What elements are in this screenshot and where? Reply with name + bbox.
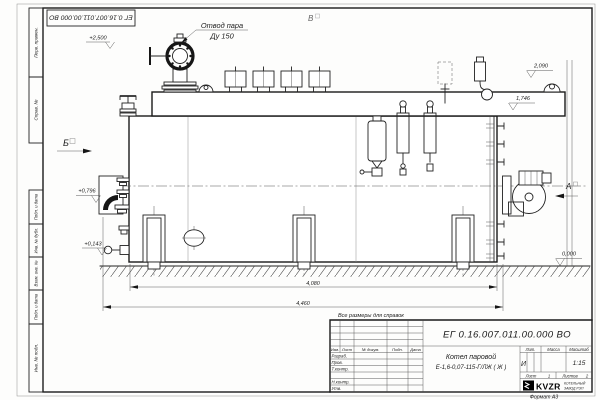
litera-header: Лит.: [525, 347, 536, 352]
flipped-designation-box: ЕГ 0.16.007.011.00.000 ВО: [47, 10, 135, 26]
elevation-mark: +0,796: [76, 189, 101, 203]
support-leg: [143, 215, 165, 269]
elevation-value: +0,796: [78, 189, 96, 195]
margin-cell-podp-data-2: Подп. и дата: [29, 290, 43, 324]
dim-inner-length: 4,080: [306, 281, 320, 287]
mass-header: Масса: [547, 347, 560, 352]
product-name-line1: Котел паровой: [446, 353, 496, 361]
side-nozzle: [119, 226, 129, 234]
sig-row-prov: Пров.: [332, 360, 343, 365]
steam-outlet-label-line2: Ду 150: [209, 32, 234, 41]
title-designation: ЕГ 0.16.007.011.00.000 ВО: [443, 330, 571, 341]
lifting-lug: [544, 84, 560, 92]
steam-outlet-valve: [150, 34, 198, 92]
title-block: ЕГ 0.16.007.011.00.000 ВО Котел паровой …: [330, 320, 592, 392]
support-leg: [293, 215, 315, 269]
margin-label: Инв. № подл.: [34, 344, 39, 373]
sig-row-tkontr: Т.контр.: [332, 367, 349, 372]
sheet-value: 1: [548, 374, 550, 379]
view-marker-b: Б: [57, 138, 92, 153]
format-note: Формат А3: [530, 395, 558, 400]
burner-unit: [503, 171, 552, 216]
sheet-label: Лист: [525, 374, 537, 379]
product-name-line2: Е-1,6-0,07-115-Г/ЛЖ ( Ж ): [436, 365, 507, 371]
safety-valve-hood: [309, 67, 330, 92]
elevation-value: 1,746: [516, 96, 531, 102]
sheets-label: Листов: [561, 374, 578, 379]
safety-valve-hood: [225, 67, 246, 92]
col-header-date: Дата: [409, 347, 421, 352]
margin-label: Взам. инв. №: [34, 260, 39, 286]
margin-label: Подп. и дата: [34, 293, 39, 320]
view-marker-v: В: [308, 14, 320, 23]
col-header-izm: Изм.: [331, 347, 340, 352]
scale-header: Масштаб: [569, 347, 589, 352]
side-nozzle: [115, 205, 129, 213]
lifting-lug: [199, 85, 213, 92]
top-left-valve: [120, 96, 136, 116]
steam-outlet-label-line1: Отвод пара: [201, 21, 243, 30]
margin-label: Инв. № дубл.: [34, 228, 39, 254]
col-header-doc: № докум.: [362, 347, 380, 352]
view-letter: А: [565, 182, 571, 191]
litera-value: И: [521, 361, 527, 368]
ground-line: [100, 266, 590, 277]
elevation-mark: +2,500: [86, 36, 115, 49]
steam-drum-platform: [152, 92, 565, 116]
margin-cell-inv-dubl: Инв. № дубл.: [29, 224, 43, 257]
col-header-list: Лист: [341, 347, 353, 352]
elevation-value: 2,090: [533, 64, 549, 70]
sheets-value: 2: [585, 374, 589, 379]
scale-value: 1:15: [573, 360, 586, 367]
margin-cell-sprav-no: Справ. №: [29, 77, 43, 143]
sig-row-utv: Утв.: [332, 386, 342, 391]
dim-outer-length: 4,460: [296, 301, 310, 307]
reference-note: Все размеры для справок: [338, 313, 404, 319]
margin-label: Перв. примен.: [34, 27, 39, 58]
safety-valve-hood: [281, 67, 302, 92]
logo-subtext-2: ЗАВОД РЭП: [564, 387, 584, 391]
sig-row-razrab: Разраб.: [332, 354, 348, 359]
elevation-value: +2,500: [89, 36, 107, 42]
view-marker-a: А: [555, 182, 578, 198]
margin-cell-inv-podl: Инв. № подл.: [29, 324, 43, 392]
flipped-designation-text: ЕГ 0.16.007.011.00.000 ВО: [49, 14, 133, 21]
col-header-sign: Подп.: [392, 347, 403, 352]
margin-label: Справ. №: [34, 100, 39, 121]
elevation-mark: 0,000: [556, 252, 583, 266]
margin-cell-perv-primen: Перв. примен.: [29, 8, 43, 77]
margin-cell-podp-data-1: Подп. и дата: [29, 190, 43, 224]
elevation-value: +0,143: [84, 242, 102, 248]
boiler-side-view: Отвод пара Ду 150: [99, 21, 590, 277]
support-leg: [452, 215, 474, 269]
company-logo: KVZR КОТЕЛЬНЫЙ ЗАВОД РЭП: [523, 381, 586, 392]
steam-outlet-callout: Отвод пара Ду 150: [181, 21, 248, 43]
sig-row-nkontr: Н.контр.: [332, 380, 350, 385]
elevation-value: 0,000: [562, 252, 577, 258]
margin-label: Подп. и дата: [34, 193, 39, 220]
elevation-mark: 2,090: [527, 64, 554, 78]
view-letter: Б: [63, 138, 69, 148]
margin-stamps: Перв. примен. Справ. № Подп. и дата Инв.…: [29, 8, 43, 392]
view-letter: В: [308, 14, 314, 23]
drawing-sheet: Перв. примен. Справ. № Подп. и дата Инв.…: [0, 0, 600, 400]
margin-cell-vzam-inv: Взам. инв. №: [29, 257, 43, 290]
boiler-assembly-drawing: Перв. примен. Справ. № Подп. и дата Инв.…: [0, 0, 600, 400]
safety-valve-hood: [253, 67, 274, 92]
logo-text: KVZR: [536, 382, 561, 392]
drain-valve: [104, 246, 129, 255]
logo-subtext-1: КОТЕЛЬНЫЙ: [564, 382, 586, 386]
logo-mark-icon: [523, 381, 534, 391]
